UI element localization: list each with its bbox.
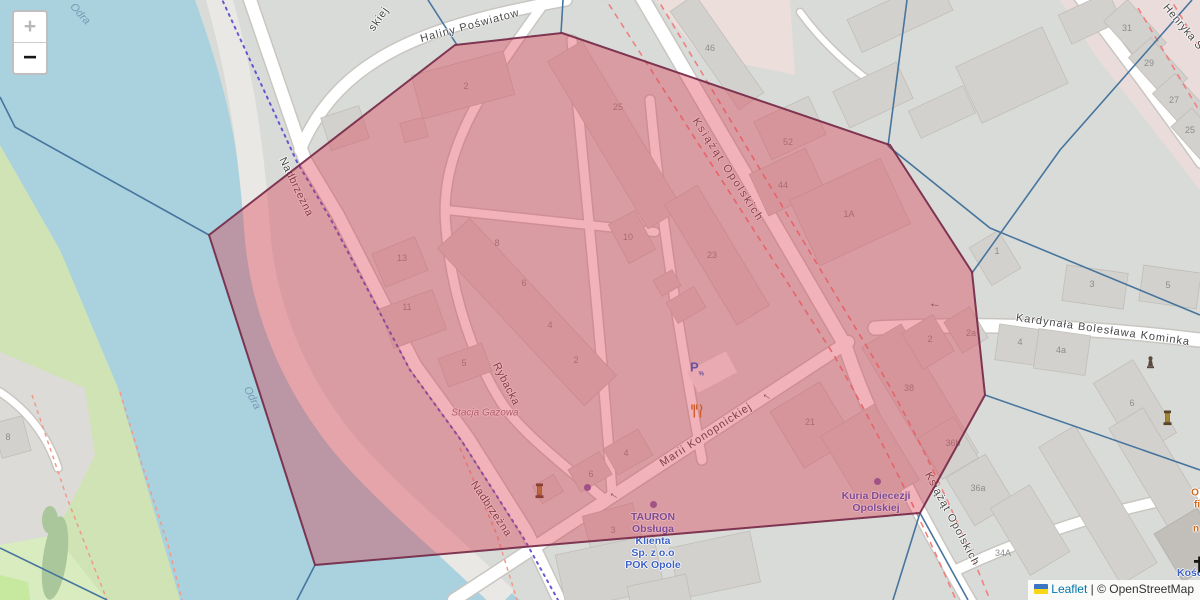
zoom-in-button[interactable]: + [14, 12, 46, 43]
map-canvas[interactable]: Haliny PoświatowskiejKsiążąt OpolskichKs… [0, 0, 1200, 600]
attribution-separator: | [1091, 582, 1094, 596]
ukraine-flag-icon [1034, 584, 1048, 594]
openstreetmap-link[interactable]: © OpenStreetMap [1097, 582, 1194, 596]
overlay-layer [0, 0, 1200, 600]
zoom-out-button[interactable]: − [14, 43, 46, 73]
zoom-control: + − [12, 10, 48, 75]
attribution-bar: Leaflet | © OpenStreetMap [1028, 580, 1200, 600]
highlighted-area-polygon[interactable] [209, 33, 985, 565]
leaflet-link[interactable]: Leaflet [1051, 582, 1087, 596]
